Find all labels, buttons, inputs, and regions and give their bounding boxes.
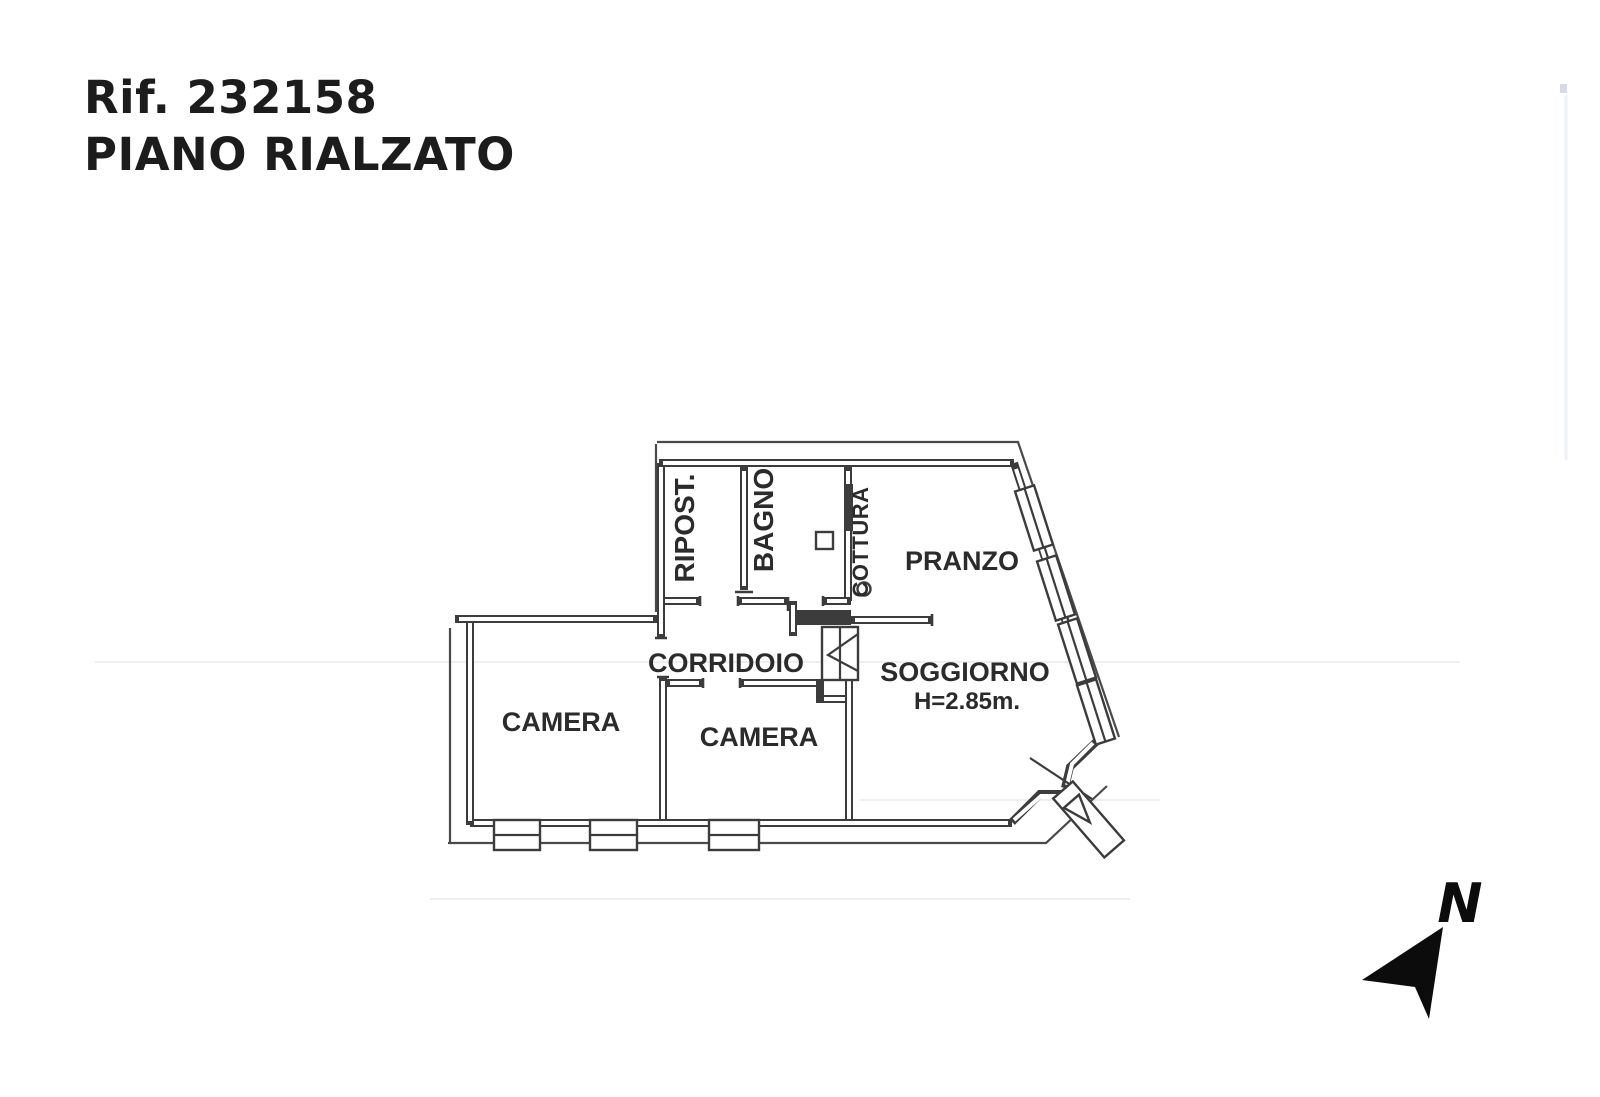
- windows-south: [494, 820, 759, 850]
- label-camera-middle: CAMERA: [700, 722, 819, 752]
- scan-artifacts: [95, 84, 1567, 899]
- label-ripostiglio: RIPOST.: [669, 474, 700, 583]
- reference-number: Rif. 232158: [84, 71, 377, 124]
- window: [590, 820, 637, 850]
- window: [1037, 555, 1075, 620]
- window: [494, 820, 540, 850]
- north-arrow: N: [1362, 872, 1483, 1019]
- label-corridoio: CORRIDOIO: [648, 648, 804, 678]
- label-pranzo: PRANZO: [905, 546, 1019, 576]
- walls: [455, 463, 1105, 825]
- label-camera-left: CAMERA: [502, 707, 621, 737]
- scanned-floorplan-page: Rif. 232158 PIANO RIALZATO: [0, 0, 1600, 1097]
- stairs: [822, 627, 858, 680]
- window: [1015, 485, 1053, 550]
- title-block: Rif. 232158 PIANO RIALZATO: [84, 71, 515, 181]
- room-labels: RIPOST. BAGNO COTTURA PRANZO CORRIDOIO C…: [502, 468, 1050, 752]
- label-bagno: BAGNO: [748, 468, 779, 572]
- window: [1077, 679, 1115, 744]
- threshold-wall: [795, 610, 851, 625]
- bathroom-fixture: [816, 532, 833, 549]
- label-soggiorno-height: H=2.85m.: [914, 688, 1020, 715]
- north-arrow-glyph: [1362, 927, 1443, 1019]
- windows-east-slant: [1015, 485, 1115, 744]
- floorplan-canvas: Rif. 232158 PIANO RIALZATO: [0, 0, 1600, 1097]
- floor-name: PIANO RIALZATO: [84, 128, 515, 181]
- label-soggiorno: SOGGIORNO: [880, 657, 1050, 687]
- window: [709, 820, 759, 850]
- north-letter: N: [1437, 872, 1482, 935]
- label-cottura: COTTURA: [848, 486, 873, 597]
